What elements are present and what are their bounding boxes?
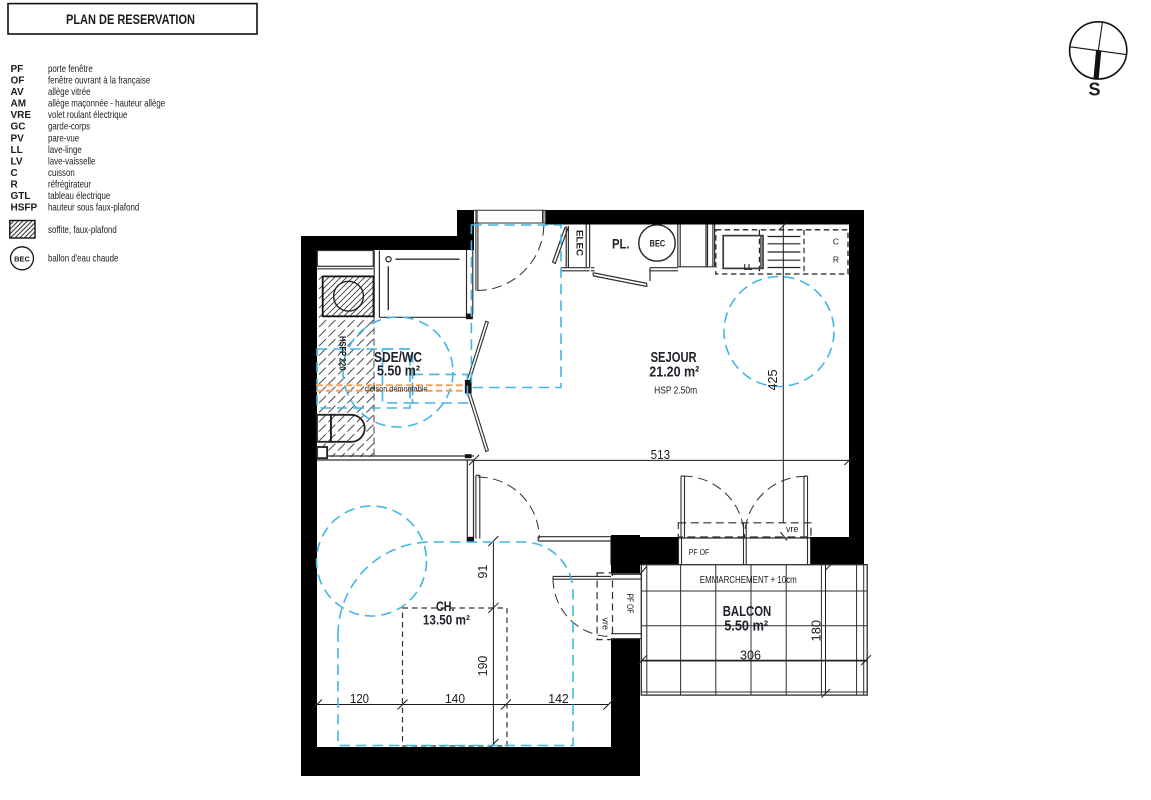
svg-text:91: 91 [475,565,490,579]
svg-text:5.50 m²: 5.50 m² [724,619,768,635]
svg-text:tableau électrique: tableau électrique [48,190,110,201]
svg-text:lave-linge: lave-linge [48,144,82,155]
svg-text:140: 140 [445,691,465,706]
svg-text:lave-vaisselle: lave-vaisselle [48,156,95,167]
svg-text:AV: AV [11,87,24,98]
svg-text:volet roulant électrique: volet roulant électrique [48,109,127,120]
svg-text:GC: GC [11,122,26,133]
svg-text:142: 142 [548,691,569,706]
svg-text:21.20 m²: 21.20 m² [649,364,699,381]
svg-text:LL: LL [11,145,23,156]
svg-text:180: 180 [809,620,824,642]
svg-text:HSP 2.50m: HSP 2.50m [654,385,697,396]
svg-text:GTL: GTL [11,191,31,202]
svg-text:5.50 m²: 5.50 m² [377,363,420,379]
svg-text:soffite, faux-plafond: soffite, faux-plafond [48,224,117,235]
svg-text:LV: LV [11,156,23,167]
svg-text:ELEC: ELEC [573,230,584,256]
svg-text:513: 513 [651,447,671,462]
svg-text:LL: LL [744,262,753,272]
svg-text:porte fenêtre: porte fenêtre [48,63,93,74]
svg-text:190: 190 [475,656,490,677]
svg-text:425: 425 [765,370,780,391]
svg-text:allège vitrée: allège vitrée [48,86,91,97]
svg-text:R: R [11,180,19,191]
svg-text:306: 306 [740,647,761,662]
svg-text:C: C [833,237,839,247]
svg-text:vre: vre [786,524,799,534]
svg-text:réfrégirateur: réfrégirateur [48,179,91,190]
svg-text:hauteur sous faux-plafond: hauteur sous faux-plafond [48,202,139,213]
svg-text:allège maçonnée - hauteur allè: allège maçonnée - hauteur allège [48,98,165,109]
svg-text:PLAN DE RESERVATION: PLAN DE RESERVATION [66,11,195,27]
svg-text:PL.: PL. [612,236,630,252]
svg-text:BALCON: BALCON [723,603,772,620]
svg-text:EMMARCHEMENT + 10cm: EMMARCHEMENT + 10cm [700,575,797,586]
svg-text:120: 120 [350,691,369,706]
svg-text:vre: vre [601,618,611,631]
svg-text:HSFP 220: HSFP 220 [336,336,347,371]
svg-text:S: S [1088,80,1100,100]
svg-text:HSFP: HSFP [11,203,38,214]
svg-text:PF: PF [11,64,24,75]
svg-text:AM: AM [11,99,27,110]
svg-text:cuisson: cuisson [48,167,75,178]
svg-text:garde-corps: garde-corps [48,121,91,132]
svg-text:BEC: BEC [14,254,30,263]
svg-text:cloison démontable: cloison démontable [365,384,428,393]
svg-text:OF: OF [11,76,25,87]
svg-text:C: C [11,168,18,179]
svg-text:fenêtre ouvrant à la française: fenêtre ouvrant à la française [48,75,150,86]
svg-text:13.50 m²: 13.50 m² [423,612,470,628]
svg-text:VRE: VRE [11,110,32,121]
svg-text:PV: PV [11,133,25,144]
svg-text:BEC: BEC [650,238,666,248]
svg-text:PF OF: PF OF [689,547,710,557]
svg-text:ballon d'eau chaude: ballon d'eau chaude [48,253,118,264]
svg-text:pare-vue: pare-vue [48,132,79,143]
svg-text:R: R [833,255,839,265]
svg-text:PF OF: PF OF [624,594,635,614]
